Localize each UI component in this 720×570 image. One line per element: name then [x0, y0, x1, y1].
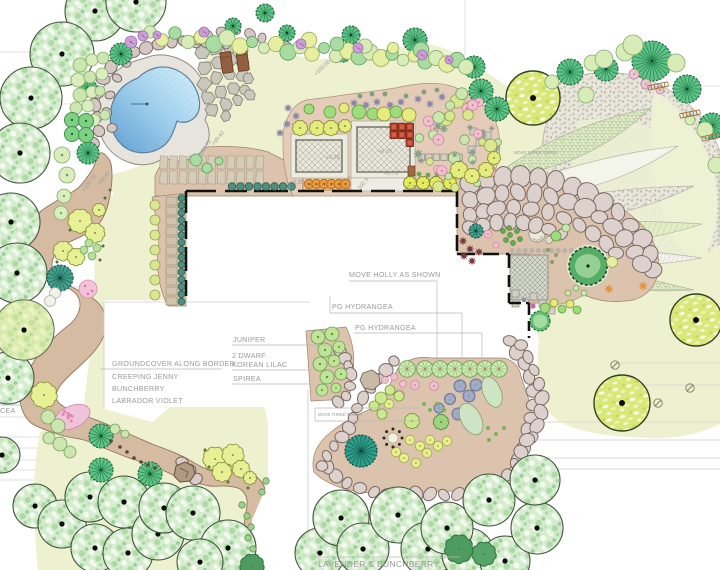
svg-text:CREEPING JENNY: CREEPING JENNY [112, 372, 179, 381]
svg-text:MOVE HOLLY AS SHOWN: MOVE HOLLY AS SHOWN [349, 270, 441, 279]
svg-text:PG HYDRANGEA: PG HYDRANGEA [332, 302, 393, 311]
svg-text:MOVE THREE SPIREA: MOVE THREE SPIREA [514, 150, 558, 155]
svg-text:LABRADOR VIOLET: LABRADOR VIOLET [112, 396, 183, 405]
svg-text:2 DWARF: 2 DWARF [232, 351, 266, 360]
svg-text:KOREAN LILAC: KOREAN LILAC [232, 360, 287, 369]
svg-text:BUNCHBERRY: BUNCHBERRY [112, 384, 165, 393]
svg-text:SPIREA: SPIREA [233, 374, 261, 383]
svg-text:LAVENDER & BUNCHBERRY: LAVENDER & BUNCHBERRY [318, 559, 439, 569]
svg-text:+0.25: +0.25 [326, 155, 340, 161]
svg-text:+0.25: +0.25 [290, 180, 304, 186]
svg-text:CEA: CEA [0, 406, 16, 415]
svg-text:JUNIPER: JUNIPER [233, 335, 266, 344]
svg-text:+0.75: +0.75 [384, 171, 398, 177]
svg-text:+0.25: +0.25 [404, 185, 418, 191]
svg-text:+0.75: +0.75 [378, 149, 392, 155]
svg-text:MOVE THREE SPIREA: MOVE THREE SPIREA [318, 412, 362, 417]
svg-text:GROUNDCOVER ALONG BORDER: GROUNDCOVER ALONG BORDER [112, 359, 235, 368]
svg-text:PG HYDRANGEA: PG HYDRANGEA [355, 323, 416, 332]
